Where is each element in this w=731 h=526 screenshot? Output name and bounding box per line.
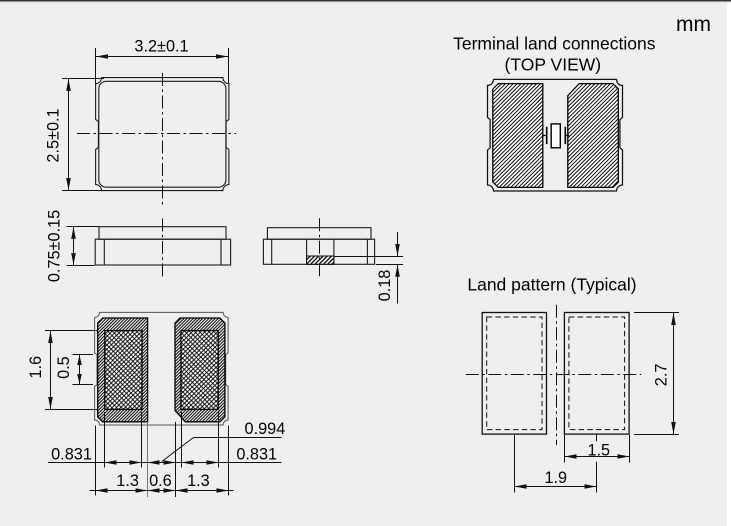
- svg-text:3.2±0.1: 3.2±0.1: [134, 38, 188, 56]
- svg-text:2.7: 2.7: [653, 364, 671, 387]
- svg-text:2.5±0.1: 2.5±0.1: [45, 108, 63, 162]
- svg-text:(TOP VIEW): (TOP VIEW): [505, 55, 602, 75]
- svg-text:Terminal land connections: Terminal land connections: [453, 34, 656, 54]
- svg-text:Land pattern (Typical): Land pattern (Typical): [467, 274, 636, 294]
- svg-text:1.6: 1.6: [27, 356, 45, 379]
- svg-text:0.6: 0.6: [149, 472, 172, 490]
- svg-text:0.831: 0.831: [236, 446, 277, 464]
- svg-text:0.75±0.15: 0.75±0.15: [46, 210, 64, 282]
- svg-text:mm: mm: [676, 13, 711, 36]
- svg-text:0.18: 0.18: [376, 270, 394, 302]
- svg-text:0.994: 0.994: [245, 420, 286, 438]
- svg-text:1.3: 1.3: [116, 472, 139, 490]
- svg-text:1.3: 1.3: [187, 472, 210, 490]
- svg-text:0.831: 0.831: [51, 446, 92, 464]
- svg-text:1.9: 1.9: [544, 469, 567, 487]
- svg-text:0.5: 0.5: [55, 356, 73, 379]
